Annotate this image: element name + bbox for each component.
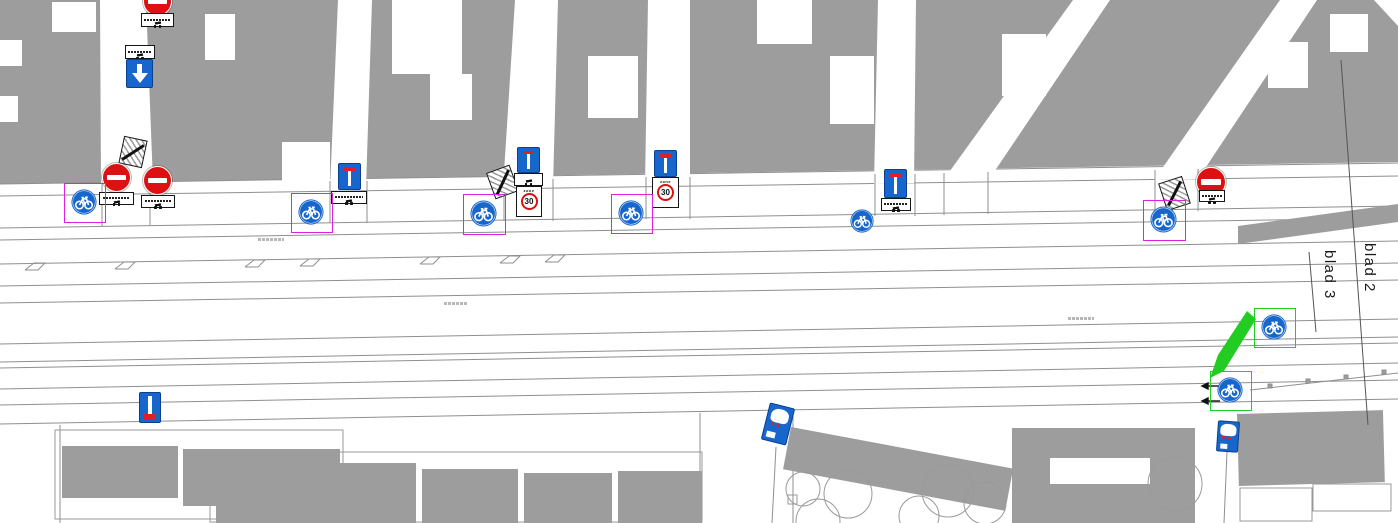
map-canvas: zone30zone30 blad 3 blad 2 (0, 0, 1398, 523)
white-bar-icon (1201, 179, 1221, 184)
white-stem-icon (527, 154, 531, 169)
sign-cycle-path[interactable] (470, 200, 497, 227)
white-bar-icon (107, 175, 126, 180)
sign-exception-plate[interactable] (141, 13, 174, 27)
illegible-plate-text (884, 203, 908, 205)
vehicle-symbol-icon (154, 22, 162, 28)
sign-zone-30[interactable]: zone30 (652, 177, 679, 208)
street-name-label-illegible (1068, 317, 1094, 320)
sign-cycle-path[interactable] (1261, 314, 1287, 340)
bicycle-icon (618, 200, 644, 226)
red-detail-icon (1222, 435, 1225, 438)
illegible-plate-text (145, 200, 172, 202)
speed-value: 30 (525, 198, 534, 206)
illegible-plate-text (1202, 195, 1222, 197)
illegible-plate-text (128, 51, 152, 53)
bicycle-icon (71, 189, 97, 215)
vehicle-symbol-icon (525, 180, 533, 186)
sign-exception-plate[interactable] (331, 191, 367, 204)
white-detail (766, 431, 776, 439)
diagonal-slash-icon (496, 169, 510, 195)
white-stem-icon (148, 396, 152, 414)
sign-cycle-path[interactable] (1150, 206, 1177, 233)
sign-dead-end[interactable] (338, 163, 361, 190)
vehicle-symbol-icon (154, 203, 162, 209)
sign-dead-end[interactable] (517, 147, 540, 173)
illegible-plate-text (335, 196, 364, 198)
sign-exception-plate[interactable] (1199, 190, 1225, 202)
sign-one-way-down[interactable] (126, 59, 153, 88)
sign-no-entry[interactable] (143, 166, 172, 195)
sign-cycle-path[interactable] (71, 189, 97, 215)
white-stem-icon (664, 158, 668, 173)
sign-exception-plate[interactable] (141, 195, 175, 208)
bicycle-icon (1150, 206, 1177, 233)
bicycle-icon (298, 199, 324, 225)
white-bar-icon (148, 0, 167, 4)
white-panel (1220, 424, 1236, 437)
speed-circle: 30 (657, 184, 674, 201)
sign-zone-30[interactable]: zone30 (516, 186, 542, 217)
vehicle-symbol-icon (892, 206, 900, 212)
sheet-label-blad-3: blad 3 (1321, 250, 1338, 300)
vehicle-symbol-icon (345, 199, 353, 205)
sign-pictogram-blue[interactable] (761, 402, 795, 445)
illegible-plate-text (103, 197, 131, 199)
sign-pictogram-blue[interactable] (1216, 420, 1240, 452)
vehicle-symbol-icon (1208, 198, 1216, 204)
sign-dead-end-flipped[interactable] (139, 392, 161, 423)
bicycle-icon (470, 200, 497, 227)
white-stem-icon (348, 171, 352, 186)
street-name-label-illegible (258, 238, 284, 241)
sign-exception-plate[interactable] (514, 173, 543, 186)
diagonal-slash-icon (121, 144, 144, 160)
red-bar-icon (144, 414, 155, 419)
sheet-label-blad-2: blad 2 (1361, 243, 1378, 293)
sign-cycle-path[interactable] (850, 209, 874, 233)
illegible-plate-text (144, 19, 170, 21)
speed-circle: 30 (521, 193, 538, 210)
sign-no-entry[interactable] (102, 163, 131, 192)
red-detail-icon (770, 422, 774, 426)
sign-dead-end[interactable] (654, 150, 677, 177)
sign-exception-plate[interactable] (881, 198, 911, 211)
sign-cycle-path[interactable] (298, 199, 324, 225)
arrow-down-icon (132, 73, 148, 83)
traffic-signs-layer: zone30zone30 (0, 0, 1398, 523)
vehicle-symbol-icon (113, 200, 121, 206)
white-stem-icon (894, 177, 898, 193)
sign-end-restrictions[interactable] (118, 136, 147, 168)
speed-value: 30 (661, 189, 670, 197)
sign-dead-end[interactable] (884, 169, 907, 198)
bicycle-icon (1217, 377, 1243, 403)
bicycle-icon (1261, 314, 1287, 340)
sign-exception-plate[interactable] (125, 45, 155, 59)
sign-cycle-path[interactable] (1217, 377, 1243, 403)
sign-cycle-path[interactable] (618, 200, 644, 226)
white-detail (1220, 443, 1228, 448)
bicycle-icon (850, 209, 874, 233)
white-bar-icon (148, 178, 167, 183)
street-name-label-illegible (444, 302, 468, 305)
